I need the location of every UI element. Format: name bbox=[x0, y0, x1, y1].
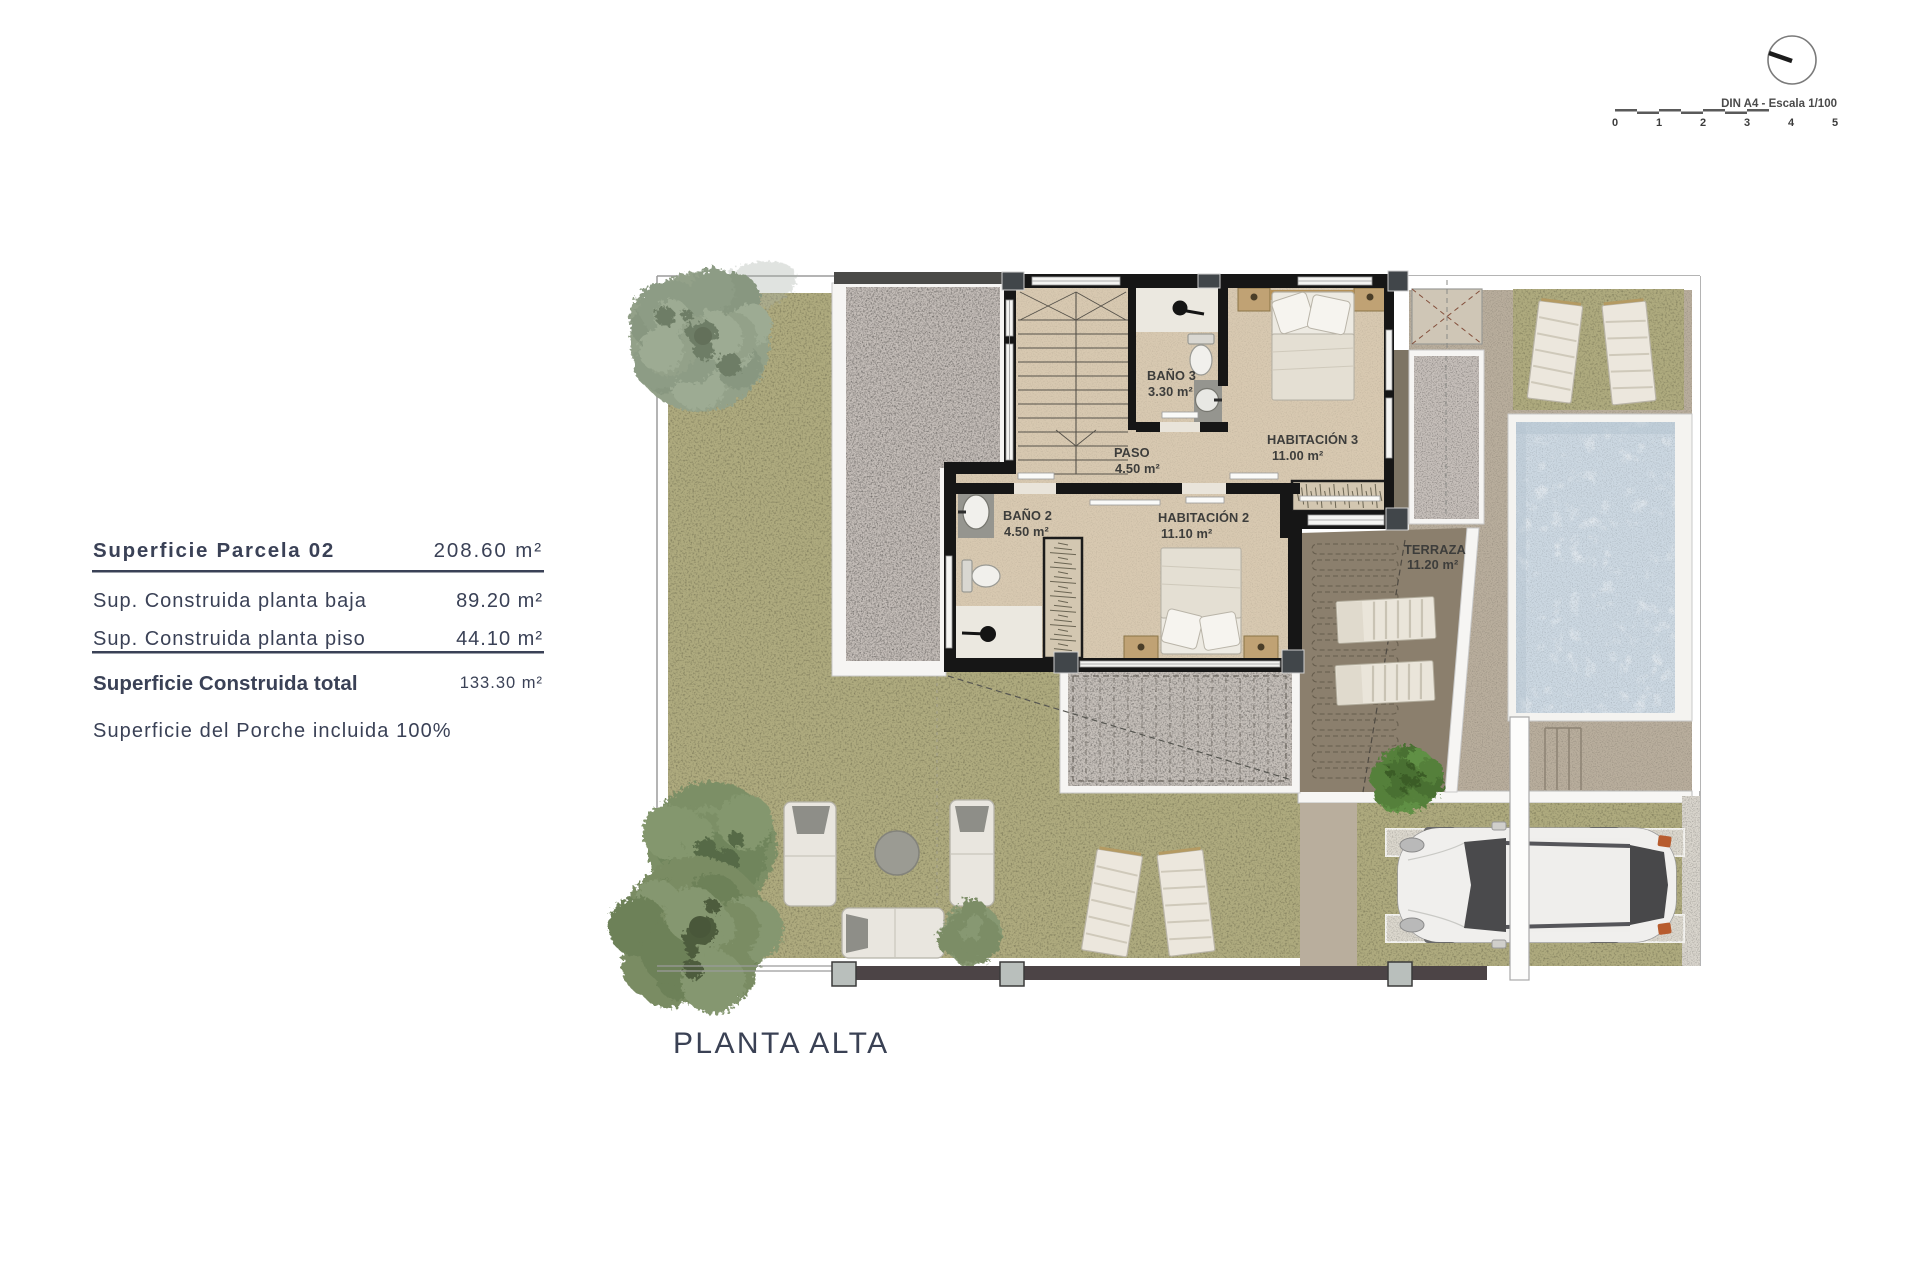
svg-text:0: 0 bbox=[1612, 117, 1618, 129]
svg-text:BAÑO 2: BAÑO 2 bbox=[1003, 508, 1052, 523]
svg-text:208.60 m²: 208.60 m² bbox=[434, 539, 543, 562]
svg-text:Superficie del Porche incluida: Superficie del Porche incluida 100% bbox=[93, 720, 452, 742]
svg-text:44.10 m²: 44.10 m² bbox=[456, 628, 543, 650]
svg-text:Superficie Parcela 02: Superficie Parcela 02 bbox=[93, 539, 335, 562]
svg-text:3.30 m²: 3.30 m² bbox=[1148, 384, 1193, 399]
svg-text:PASO: PASO bbox=[1114, 445, 1150, 460]
svg-text:133.30 m²: 133.30 m² bbox=[460, 674, 543, 692]
svg-text:PLANTA ALTA: PLANTA ALTA bbox=[673, 1027, 889, 1060]
svg-text:1: 1 bbox=[1656, 117, 1662, 129]
svg-text:2: 2 bbox=[1700, 117, 1706, 129]
svg-text:3: 3 bbox=[1744, 117, 1750, 129]
svg-text:11.10 m²: 11.10 m² bbox=[1161, 526, 1212, 541]
svg-text:5: 5 bbox=[1832, 117, 1838, 129]
svg-text:DIN A4 - Escala 1/100: DIN A4 - Escala 1/100 bbox=[1721, 98, 1837, 110]
svg-text:Superficie Construida total: Superficie Construida total bbox=[93, 672, 358, 695]
svg-text:4: 4 bbox=[1788, 117, 1795, 129]
svg-text:Sup. Construida planta baja: Sup. Construida planta baja bbox=[93, 590, 367, 612]
svg-text:11.20 m²: 11.20 m² bbox=[1407, 557, 1458, 572]
svg-text:89.20 m²: 89.20 m² bbox=[456, 590, 543, 612]
svg-text:HABITACIÓN 3: HABITACIÓN 3 bbox=[1267, 432, 1358, 447]
svg-text:HABITACIÓN 2: HABITACIÓN 2 bbox=[1158, 510, 1249, 525]
svg-text:4.50 m²: 4.50 m² bbox=[1115, 461, 1160, 476]
svg-text:11.00 m²: 11.00 m² bbox=[1272, 448, 1323, 463]
svg-text:4.50 m²: 4.50 m² bbox=[1004, 524, 1049, 539]
svg-text:Sup. Construida planta piso: Sup. Construida planta piso bbox=[93, 628, 366, 650]
svg-text:BAÑO 3: BAÑO 3 bbox=[1147, 368, 1196, 383]
svg-text:TERRAZA: TERRAZA bbox=[1404, 542, 1466, 557]
